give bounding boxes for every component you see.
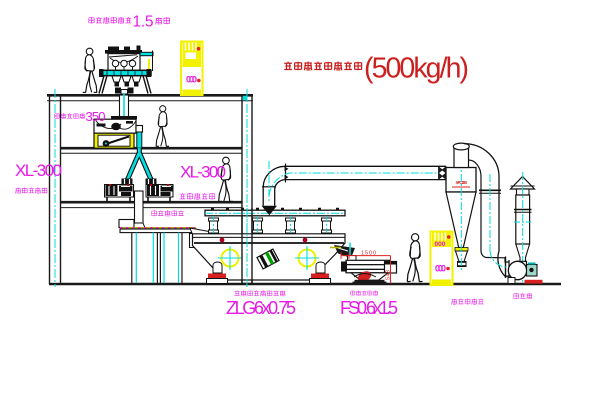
svg-text:000: 000 [435, 264, 446, 274]
svg-text:XL-300: XL-300 [180, 163, 226, 182]
svg-text:548: 548 [385, 270, 391, 280]
svg-text:000: 000 [435, 241, 446, 248]
svg-text:1500: 1500 [361, 251, 376, 257]
svg-text:000: 000 [186, 75, 197, 85]
svg-text:XL-300: XL-300 [15, 161, 62, 180]
svg-text:FS0.6x1.5: FS0.6x1.5 [340, 298, 398, 318]
svg-text:(500kg/h): (500kg/h) [364, 53, 469, 85]
svg-text:ZLG6x0.75: ZLG6x0.75 [226, 298, 296, 318]
svg-text:350: 350 [86, 109, 106, 124]
svg-text:1.5: 1.5 [133, 14, 154, 31]
